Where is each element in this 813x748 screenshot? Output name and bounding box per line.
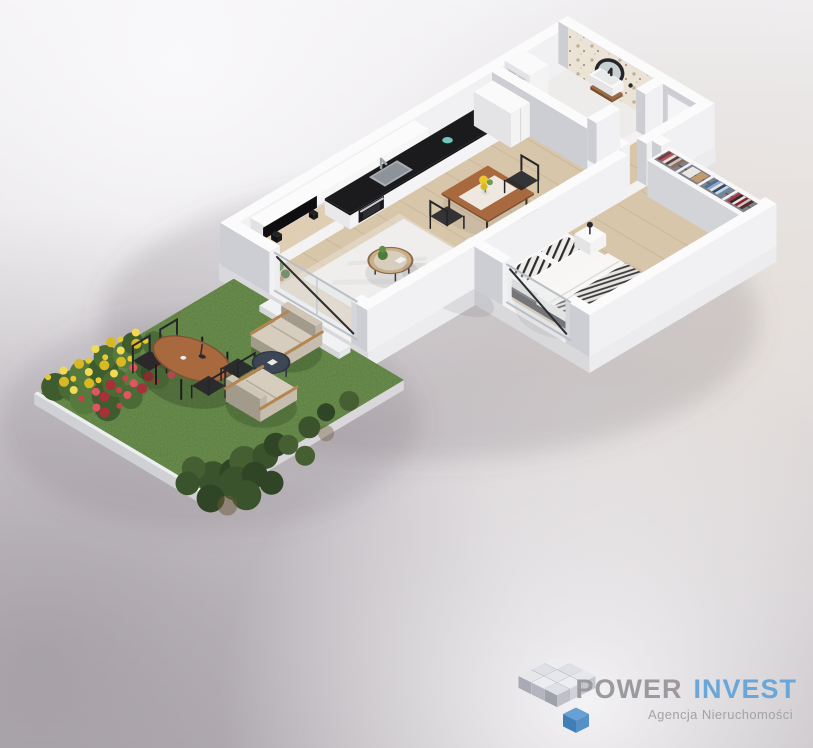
brand-tagline: Agencja Nieruchomości xyxy=(575,707,793,722)
floorplan-3d-render xyxy=(0,0,813,748)
brand-secondary: INVEST xyxy=(693,674,797,704)
logo-lockup: POWERINVEST Agencja Nieruchomości xyxy=(575,676,797,722)
brand-name: POWERINVEST xyxy=(575,676,797,703)
render-canvas: POWERINVEST Agencja Nieruchomości xyxy=(0,0,813,748)
brand-primary: POWER xyxy=(575,674,682,704)
